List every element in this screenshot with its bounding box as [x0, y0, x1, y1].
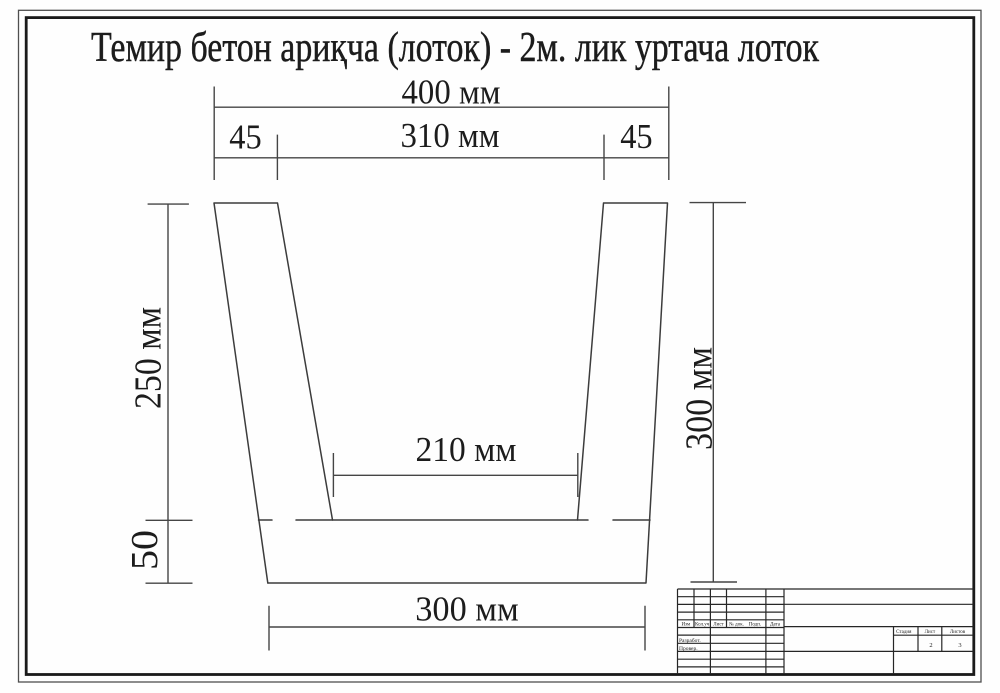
svg-text:Лист: Лист — [713, 623, 724, 628]
svg-text:Листов: Листов — [950, 630, 966, 635]
svg-text:45: 45 — [620, 117, 652, 156]
svg-text:3: 3 — [958, 642, 961, 649]
svg-text:300 мм: 300 мм — [415, 590, 519, 629]
svg-text:Изм: Изм — [681, 623, 691, 628]
svg-text:250 мм: 250 мм — [128, 307, 170, 409]
svg-text:Лист: Лист — [925, 630, 936, 635]
svg-text:Стадия: Стадия — [896, 630, 912, 635]
svg-text:400 мм: 400 мм — [402, 73, 501, 112]
svg-text:2: 2 — [929, 642, 932, 649]
svg-text:300 мм: 300 мм — [679, 347, 721, 450]
svg-text:Дата: Дата — [770, 623, 781, 628]
svg-text:Разработ.: Разработ. — [679, 637, 701, 644]
svg-text:Провер.: Провер. — [679, 646, 698, 652]
svg-text:310 мм: 310 мм — [401, 116, 500, 155]
svg-text:45: 45 — [229, 118, 261, 157]
svg-text:210 мм: 210 мм — [416, 430, 517, 469]
svg-text:50: 50 — [124, 530, 166, 570]
svg-text:Темир бетон ариқча (лоток) - 2: Темир бетон ариқча (лоток) - 2м. лик урт… — [91, 25, 819, 71]
svg-text:Кол.уч: Кол.уч — [695, 623, 710, 628]
svg-text:№ док.: № док. — [729, 622, 744, 628]
svg-text:Подп.: Подп. — [749, 623, 761, 628]
